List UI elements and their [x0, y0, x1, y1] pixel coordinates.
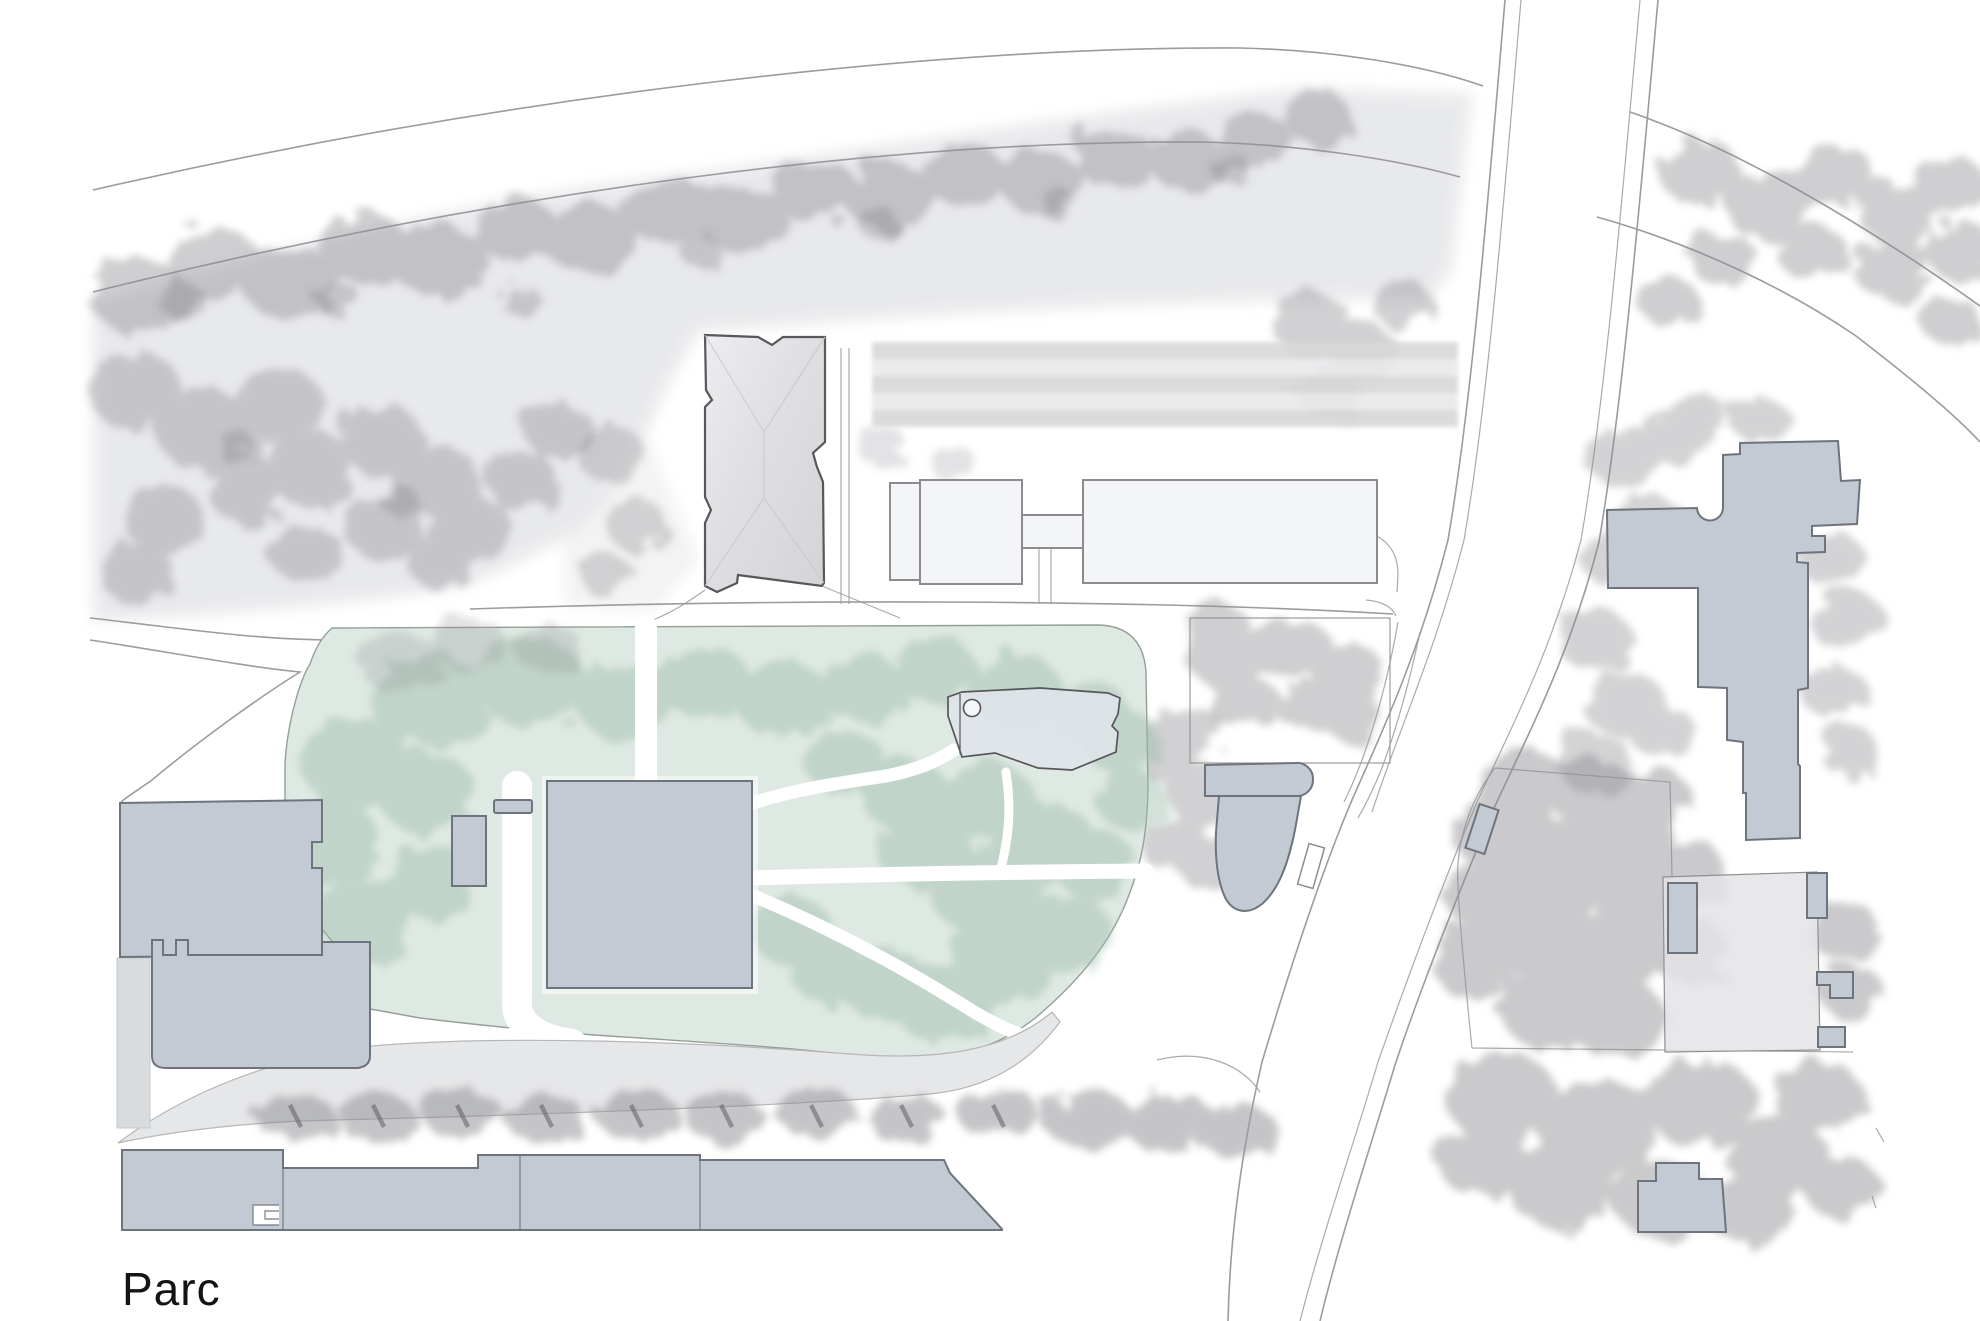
school-wing-small	[890, 483, 920, 580]
site-plan-drawing	[0, 0, 1980, 1321]
school-building-west	[920, 480, 1022, 584]
park-annex-building	[452, 816, 486, 886]
map-caption: Parc	[122, 1262, 221, 1316]
park-main-building	[547, 781, 752, 988]
courtyard-building-west	[1668, 883, 1697, 953]
site-plan-page: Parc	[0, 0, 1980, 1321]
pond-feature	[964, 700, 981, 717]
school-building-east	[1083, 480, 1377, 583]
hipped-roof-building	[705, 335, 825, 592]
sports-stripes	[872, 342, 1458, 427]
courtyard-building-southeast	[1818, 1027, 1845, 1047]
courtyard-building-north	[1807, 873, 1827, 918]
block-notch	[253, 1205, 279, 1225]
bottom-building-strip	[122, 1150, 1002, 1230]
left-light-strip-building	[117, 958, 150, 1128]
concert-hall-bar	[1205, 763, 1313, 796]
left-building-south	[152, 940, 370, 1068]
left-building-north	[120, 800, 322, 957]
park-pavilion	[494, 800, 532, 813]
school-link	[1022, 515, 1083, 548]
